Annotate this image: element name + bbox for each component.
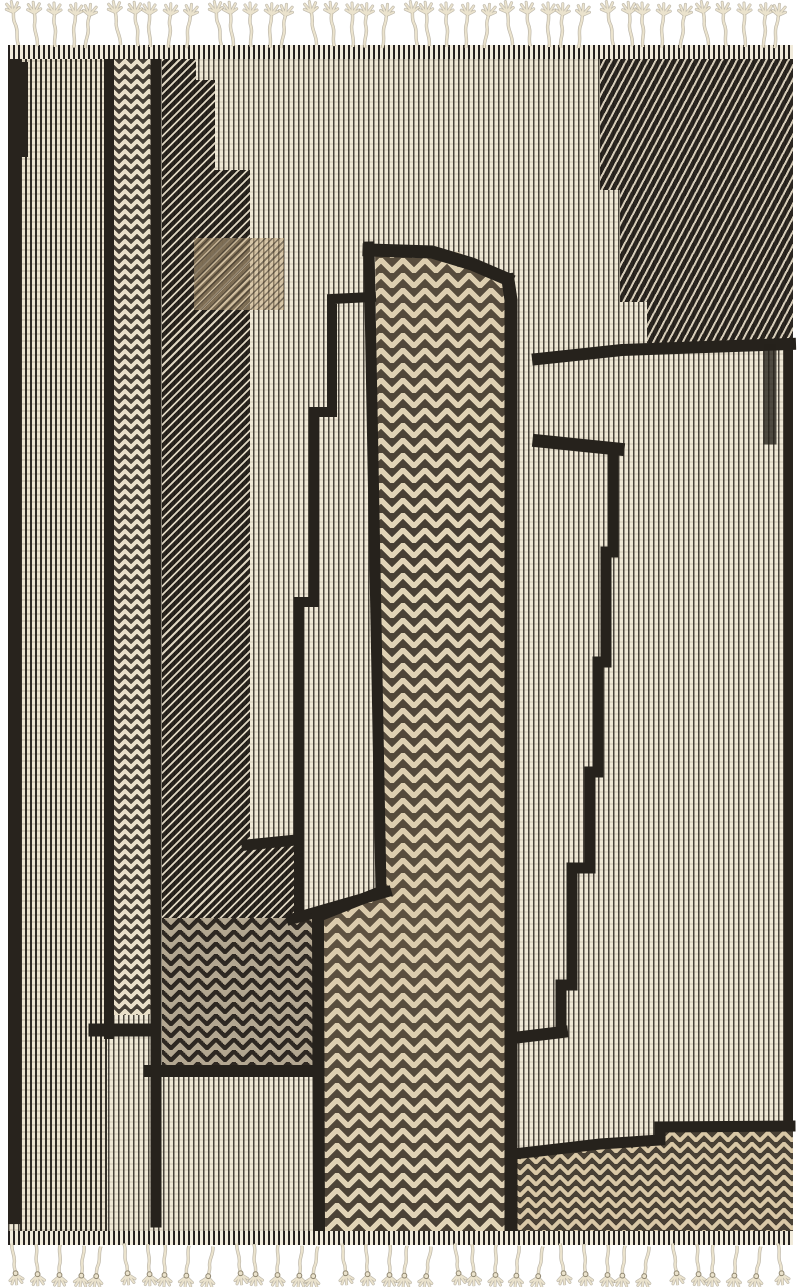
left-border xyxy=(8,59,21,1224)
tan-patch xyxy=(194,238,284,310)
rug-product-photo xyxy=(0,0,800,1287)
fringe-top xyxy=(0,0,800,47)
rug-weave xyxy=(0,0,800,1287)
dark-chevron-block xyxy=(162,918,315,1066)
left-corner-blob xyxy=(8,62,28,157)
left-field xyxy=(20,59,107,1231)
herringbone-column-left xyxy=(113,59,152,1015)
fringe-bottom xyxy=(0,1245,800,1287)
